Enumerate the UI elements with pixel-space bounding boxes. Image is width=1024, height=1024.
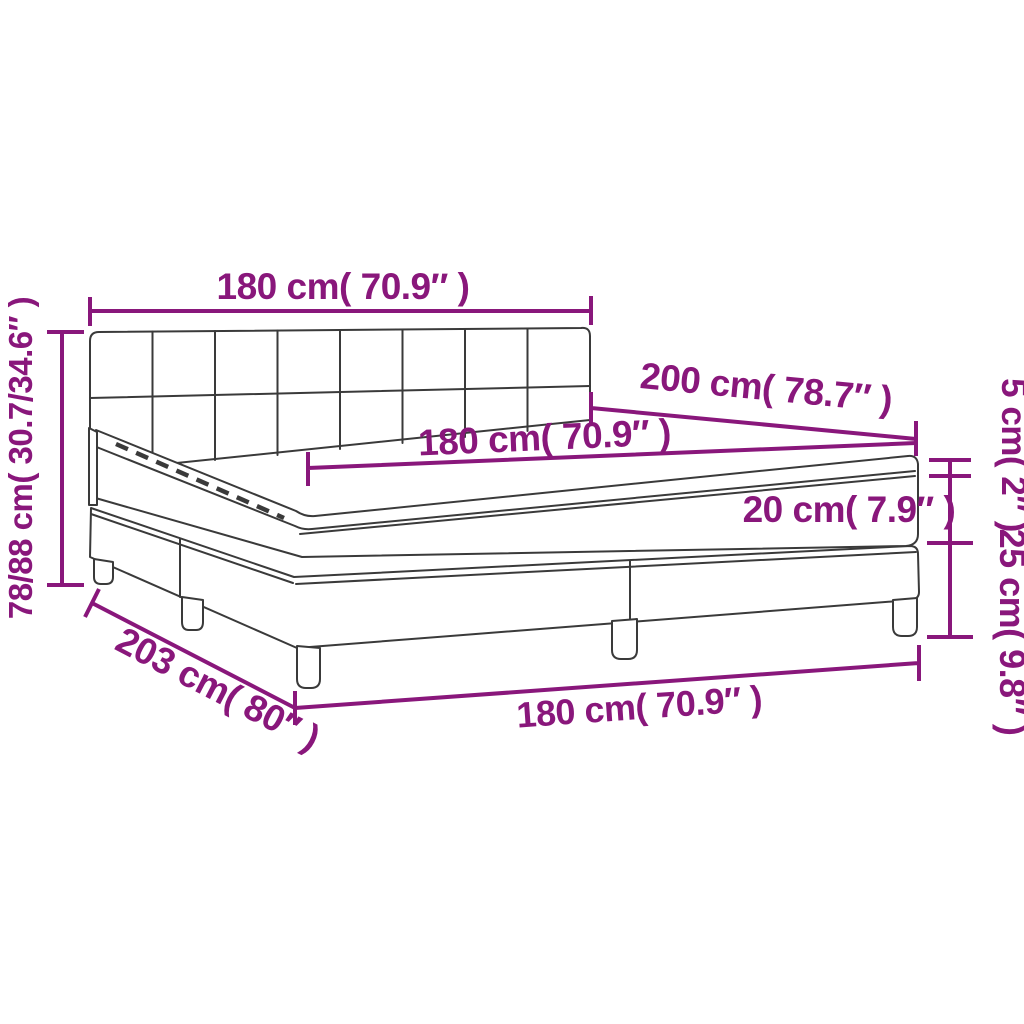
bed-leg	[94, 559, 113, 584]
dim-total-height: 78/88 cm( 30.7/34.6″ )	[2, 297, 84, 619]
headboard-width-label: 180 cm( 70.9″ )	[217, 266, 470, 307]
bed-leg	[182, 597, 203, 630]
diagram-canvas: 180 cm( 70.9″ ) 78/88 cm( 30.7/34.6″ ) 2…	[0, 0, 1024, 1024]
base-height-label: 25 cm( 9.8″ )	[992, 529, 1024, 736]
bed-dimension-diagram: 180 cm( 70.9″ ) 78/88 cm( 30.7/34.6″ ) 2…	[0, 0, 1024, 1024]
base-width-label: 180 cm( 70.9″ )	[515, 678, 763, 736]
bed-length-label: 200 cm( 78.7″ )	[638, 355, 894, 420]
dim-headboard-width: 180 cm( 70.9″ )	[90, 266, 591, 326]
bed-leg	[612, 619, 637, 659]
topper-height-label: 5 cm( 2″ )	[994, 378, 1024, 532]
dim-base-width: 180 cm( 70.9″ )	[295, 645, 919, 736]
total-height-label: 78/88 cm( 30.7/34.6″ )	[2, 297, 39, 619]
headboard-left-post	[89, 428, 97, 505]
bed-leg	[297, 646, 320, 688]
mattress-height-label: 20 cm( 7.9″ )	[743, 489, 956, 530]
bed-leg	[893, 598, 917, 636]
